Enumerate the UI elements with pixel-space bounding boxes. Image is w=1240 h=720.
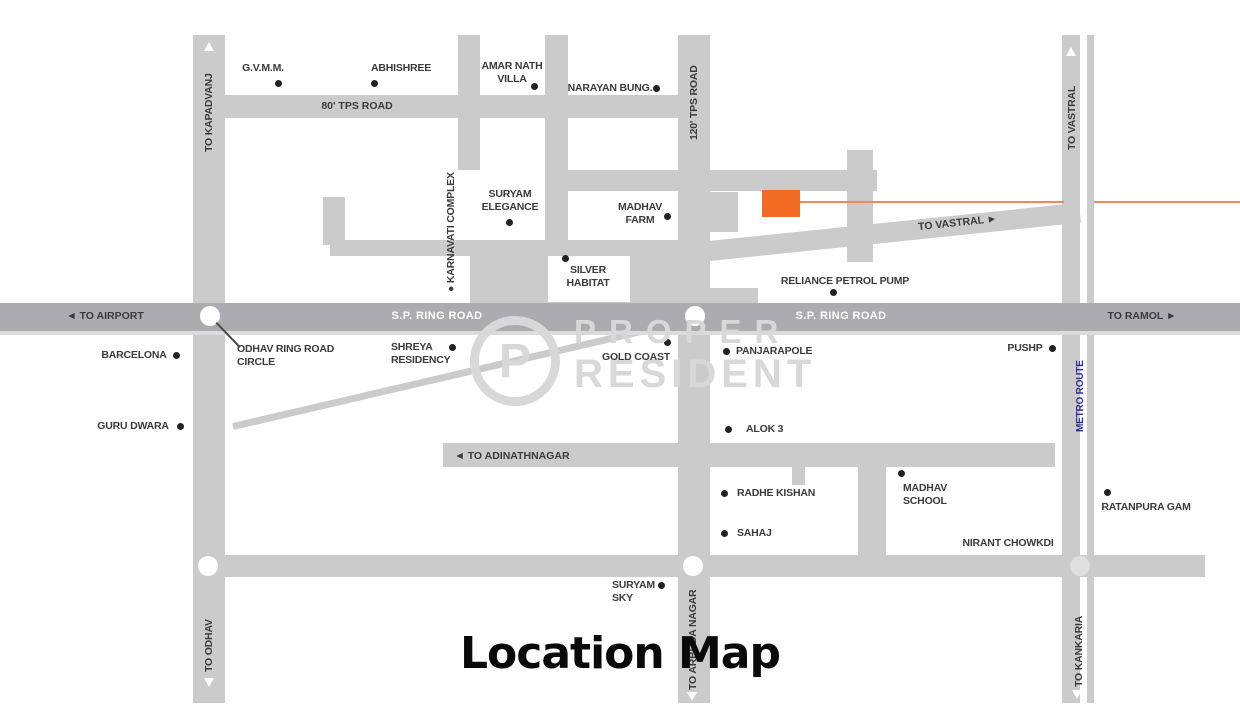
place-label-line: NIRANT CHOWKDI xyxy=(962,537,1053,550)
road-h2 xyxy=(545,170,877,191)
road-label-to-kankaria: TO KANKARIA xyxy=(1073,616,1085,687)
road-label-sp-ring-road-left: S.P. RING ROAD xyxy=(392,310,483,322)
road-label-80-tps-road: 80' TPS ROAD xyxy=(321,100,392,112)
place-label-panjarapole: PANJARAPOLE xyxy=(736,345,812,358)
place-dot-guru-dwara xyxy=(177,423,184,430)
road-stub-a xyxy=(323,197,345,245)
place-label-line: PANJARAPOLE xyxy=(736,345,812,358)
place-label-line: AMAR NATH xyxy=(482,60,543,73)
place-label-line: RELIANCE PETROL PUMP xyxy=(781,275,909,288)
place-label-ratanpura-gam: RATANPURA GAM xyxy=(1101,501,1190,514)
place-label-line: ELEGANCE xyxy=(482,201,539,214)
location-map: P PROPER RESIDENT ◄ TO AIRPORTS xyxy=(0,0,1240,720)
place-label-gold-coast: GOLD COAST xyxy=(602,351,670,364)
place-label-line: GOLD COAST xyxy=(602,351,670,364)
place-label-radhe-kishan: RADHE KISHAN xyxy=(737,487,815,500)
place-dot-sahaj xyxy=(721,530,728,537)
place-label-line: FARM xyxy=(618,214,662,227)
place-label-suryam-elegance: SURYAMELEGANCE xyxy=(482,188,539,213)
place-label-line: HABITAT xyxy=(566,277,609,290)
place-label-line: CIRCLE xyxy=(237,356,334,369)
site-marker-line-0 xyxy=(800,201,1064,203)
place-label-line: SCHOOL xyxy=(903,495,947,508)
place-label-odhav-ring-road-circle: ODHAV RING ROADCIRCLE xyxy=(237,343,334,368)
place-label-guru-dwara: GURU DWARA xyxy=(97,420,169,433)
place-label-line: SAHAJ xyxy=(737,527,772,540)
place-dot-pushp xyxy=(1049,345,1056,352)
place-label-line: MADHAV xyxy=(618,201,662,214)
watermark-logo-letter: P xyxy=(499,334,531,389)
place-dot-barcelona xyxy=(173,352,180,359)
site-marker-line-1 xyxy=(1094,201,1240,203)
junction-circle-bottom-left xyxy=(198,556,218,576)
place-dot-narayan-bung xyxy=(653,85,660,92)
place-dot-ratanpura-gam xyxy=(1104,489,1111,496)
road-label-to-ramol: TO RAMOL ► xyxy=(1108,310,1177,322)
place-label-line: ODHAV RING ROAD xyxy=(237,343,334,356)
road-label-to-adinathnagar: ◄ TO ADINATHNAGAR xyxy=(454,450,569,462)
place-label-line: G.V.M.M. xyxy=(242,62,284,75)
road-patch-a xyxy=(710,192,738,232)
place-dot-abhishree xyxy=(371,80,378,87)
road-label-metro-route: METRO ROUTE xyxy=(1075,360,1086,432)
place-label-line: ALOK 3 xyxy=(746,423,783,436)
place-label-line: SURYAM xyxy=(482,188,539,201)
place-dot-reliance-petrol-pump xyxy=(830,289,837,296)
place-label-madhav-farm: MADHAVFARM xyxy=(618,201,662,226)
place-label-line: PUSHP xyxy=(1007,342,1042,355)
road-label-to-odhav: TO ODHAV xyxy=(203,619,215,672)
place-dot-madhav-farm xyxy=(664,213,671,220)
place-label-line: RADHE KISHAN xyxy=(737,487,815,500)
place-label-gvmm: G.V.M.M. xyxy=(242,62,284,75)
place-label-shreya-residency: SHREYARESIDENCY xyxy=(391,341,450,366)
road-label-to-vastral: TO VASTRAL xyxy=(1066,86,1078,150)
place-label-line: BARCELONA xyxy=(101,349,166,362)
place-label-line: VILLA xyxy=(482,73,543,86)
place-label-sahaj: SAHAJ xyxy=(737,527,772,540)
place-label-amar-nath-villa: AMAR NATHVILLA xyxy=(482,60,543,85)
place-label-abhishree: ABHISHREE xyxy=(371,62,431,75)
arrow-up-kapadvanj-icon xyxy=(204,42,214,51)
place-label-line: GURU DWARA xyxy=(97,420,169,433)
place-label-line: SKY xyxy=(612,592,655,605)
watermark-logo-icon: P xyxy=(470,316,560,406)
junction-circle-bottom-center xyxy=(683,556,703,576)
place-label-nirant-chowkdi: NIRANT CHOWKDI xyxy=(962,537,1053,550)
place-label-suryam-sky: SURYAMSKY xyxy=(612,579,655,604)
road-label-karnavati-complex: ● KARNAVATI COMPLEX xyxy=(445,172,457,292)
road-to-vastral-diagonal xyxy=(699,203,1081,262)
place-label-line: MADHAV xyxy=(903,482,947,495)
place-dot-silver-habitat xyxy=(562,255,569,262)
place-dot-radhe-kishan xyxy=(721,490,728,497)
metro-line xyxy=(1087,35,1094,703)
arrow-down-kankaria-icon xyxy=(1072,690,1082,699)
place-label-line: RESIDENCY xyxy=(391,354,450,367)
place-label-line: NARAYAN BUNG. xyxy=(568,82,653,95)
place-label-line: SHREYA xyxy=(391,341,450,354)
place-label-madhav-school: MADHAVSCHOOL xyxy=(903,482,947,507)
road-label-to-kapadvanj: TO KAPADVANJ xyxy=(203,73,215,152)
place-dot-alok-3 xyxy=(725,426,732,433)
place-dot-madhav-school xyxy=(898,470,905,477)
arrow-down-odhav-icon xyxy=(204,678,214,687)
road-label-120-tps-road: 120' TPS ROAD xyxy=(688,65,700,140)
place-dot-suryam-elegance xyxy=(506,219,513,226)
road-patch-b xyxy=(710,288,758,304)
arrow-down-arbuda-icon xyxy=(687,692,697,701)
place-label-barcelona: BARCELONA xyxy=(101,349,166,362)
road-label-to-airport: ◄ TO AIRPORT xyxy=(66,310,143,322)
place-label-reliance-petrol-pump: RELIANCE PETROL PUMP xyxy=(781,275,909,288)
place-dot-suryam-sky xyxy=(658,582,665,589)
place-label-silver-habitat: SILVERHABITAT xyxy=(566,264,609,289)
arrow-up-vastral-icon xyxy=(1066,47,1076,56)
road-stub-s1 xyxy=(792,465,805,485)
road-label-sp-ring-road-right: S.P. RING ROAD xyxy=(796,310,887,322)
place-label-line: SURYAM xyxy=(612,579,655,592)
road-80-tps xyxy=(225,95,710,118)
place-label-line: RATANPURA GAM xyxy=(1101,501,1190,514)
junction-circle-bottom-right xyxy=(1070,556,1090,576)
page-title: Location Map xyxy=(460,628,780,679)
place-label-narayan-bung: NARAYAN BUNG. xyxy=(568,82,653,95)
place-label-line: ABHISHREE xyxy=(371,62,431,75)
place-dot-gvmm xyxy=(275,80,282,87)
place-label-alok-3: ALOK 3 xyxy=(746,423,783,436)
place-label-line: SILVER xyxy=(566,264,609,277)
place-label-pushp: PUSHP xyxy=(1007,342,1042,355)
site-marker xyxy=(762,190,800,217)
